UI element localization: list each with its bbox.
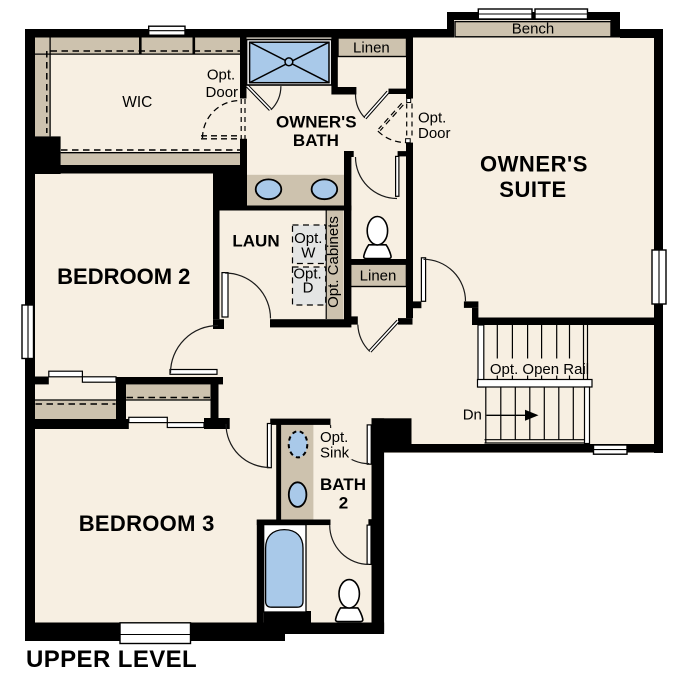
svg-text:BATH: BATH xyxy=(293,131,339,150)
svg-text:BEDROOM 2: BEDROOM 2 xyxy=(57,264,190,289)
svg-text:D: D xyxy=(303,280,314,297)
svg-text:BATH: BATH xyxy=(320,475,366,494)
svg-text:BEDROOM 3: BEDROOM 3 xyxy=(79,511,215,536)
svg-text:2: 2 xyxy=(339,494,348,513)
svg-text:Bench: Bench xyxy=(512,21,555,38)
svg-text:Opt.: Opt. xyxy=(207,66,235,83)
svg-text:OWNER'S: OWNER'S xyxy=(276,113,357,132)
svg-text:Door: Door xyxy=(418,125,451,142)
svg-text:SUITE: SUITE xyxy=(499,177,567,202)
svg-text:Opt.: Opt. xyxy=(320,429,348,446)
svg-text:W: W xyxy=(301,244,316,261)
svg-text:Linen: Linen xyxy=(353,39,390,56)
svg-text:LAUN: LAUN xyxy=(232,231,279,250)
svg-text:Linen: Linen xyxy=(360,268,397,285)
svg-text:Opt. Open Rail: Opt. Open Rail xyxy=(490,361,589,378)
svg-text:Door: Door xyxy=(206,84,239,101)
svg-text:Dn: Dn xyxy=(463,407,482,424)
svg-text:Sink: Sink xyxy=(320,444,350,461)
svg-text:Opt. Cabinets: Opt. Cabinets xyxy=(325,216,342,308)
svg-text:UPPER LEVEL: UPPER LEVEL xyxy=(26,646,197,673)
svg-text:WIC: WIC xyxy=(122,94,152,111)
svg-text:OWNER'S: OWNER'S xyxy=(480,151,588,176)
